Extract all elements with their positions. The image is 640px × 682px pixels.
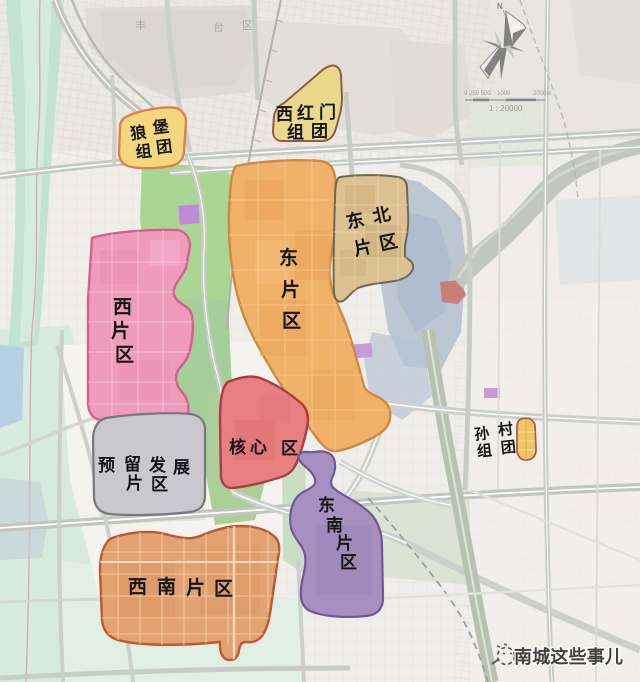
svg-text:村: 村: [497, 420, 514, 439]
svg-text:0 250 500: 0 250 500: [464, 91, 491, 97]
svg-text:东: 东: [318, 495, 335, 515]
svg-text:组: 组: [476, 441, 493, 460]
svg-text:团: 团: [155, 137, 173, 157]
svg-text:堡: 堡: [152, 117, 170, 138]
svg-text:发: 发: [148, 455, 167, 475]
svg-text:片: 片: [126, 473, 143, 493]
svg-text:1 : 20000: 1 : 20000: [489, 104, 523, 113]
svg-text:南: 南: [157, 576, 176, 598]
svg-text:展: 展: [173, 458, 190, 477]
svg-text:东: 东: [279, 246, 298, 269]
svg-text:心: 心: [250, 438, 267, 457]
svg-text:片: 片: [111, 319, 130, 342]
svg-text:区: 区: [282, 311, 301, 332]
svg-text:南城这些事儿: 南城这些事儿: [514, 646, 623, 667]
svg-text:片: 片: [186, 576, 205, 599]
svg-text:西: 西: [128, 577, 147, 598]
svg-text:区: 区: [151, 475, 168, 494]
svg-text:2000m: 2000m: [533, 91, 551, 97]
svg-text:西: 西: [276, 105, 293, 124]
svg-text:狼: 狼: [129, 122, 147, 143]
svg-text:西: 西: [113, 297, 132, 318]
svg-text:N: N: [497, 2, 503, 11]
svg-text:区: 区: [281, 439, 298, 458]
svg-text:门: 门: [319, 102, 336, 122]
svg-text:片: 片: [281, 278, 300, 301]
svg-text:团: 团: [311, 122, 328, 141]
svg-text:团: 团: [500, 439, 517, 457]
svg-text:1000: 1000: [497, 91, 511, 97]
svg-text:片: 片: [336, 533, 353, 553]
svg-text:孙: 孙: [473, 424, 490, 443]
svg-text:红: 红: [297, 103, 314, 123]
svg-text:南: 南: [326, 515, 343, 535]
svg-text:台: 台: [213, 20, 224, 34]
svg-text:预: 预: [98, 456, 115, 475]
svg-text:核: 核: [229, 437, 246, 457]
svg-text:区: 区: [242, 20, 253, 32]
svg-text:区: 区: [340, 553, 357, 572]
svg-text:区: 区: [115, 345, 134, 366]
svg-text:组: 组: [134, 141, 152, 162]
svg-text:区: 区: [214, 579, 233, 600]
svg-text:留: 留: [124, 454, 141, 474]
svg-text:丰: 丰: [135, 19, 146, 32]
svg-text:组: 组: [287, 122, 304, 142]
